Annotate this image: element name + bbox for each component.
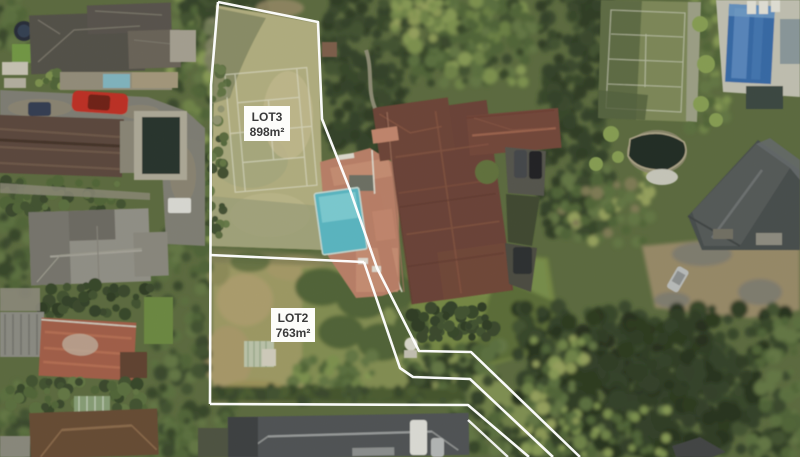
svg-text:LOT3: LOT3: [252, 110, 283, 124]
svg-text:763m²: 763m²: [276, 326, 311, 340]
svg-text:898m²: 898m²: [250, 125, 285, 139]
svg-text:LOT2: LOT2: [278, 311, 309, 325]
